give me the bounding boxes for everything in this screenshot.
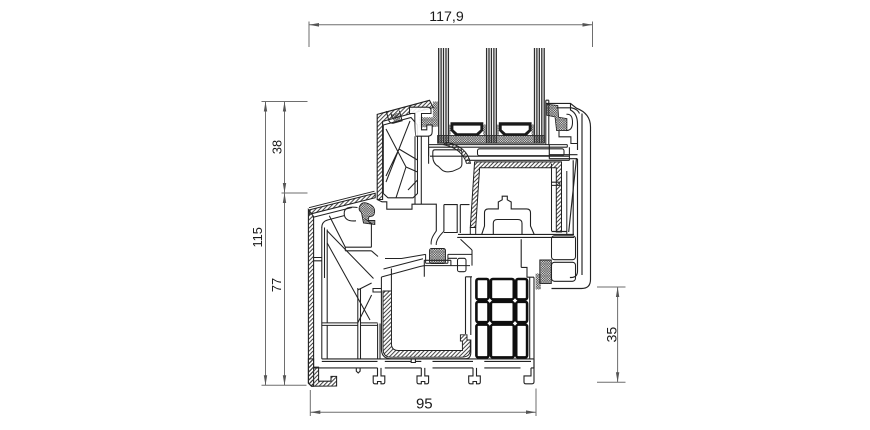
svg-text:38: 38 [270,140,285,154]
svg-text:95: 95 [416,396,433,413]
svg-text:115: 115 [250,227,265,247]
svg-text:117,9: 117,9 [429,9,464,25]
svg-text:35: 35 [604,327,620,343]
svg-text:77: 77 [269,278,284,292]
